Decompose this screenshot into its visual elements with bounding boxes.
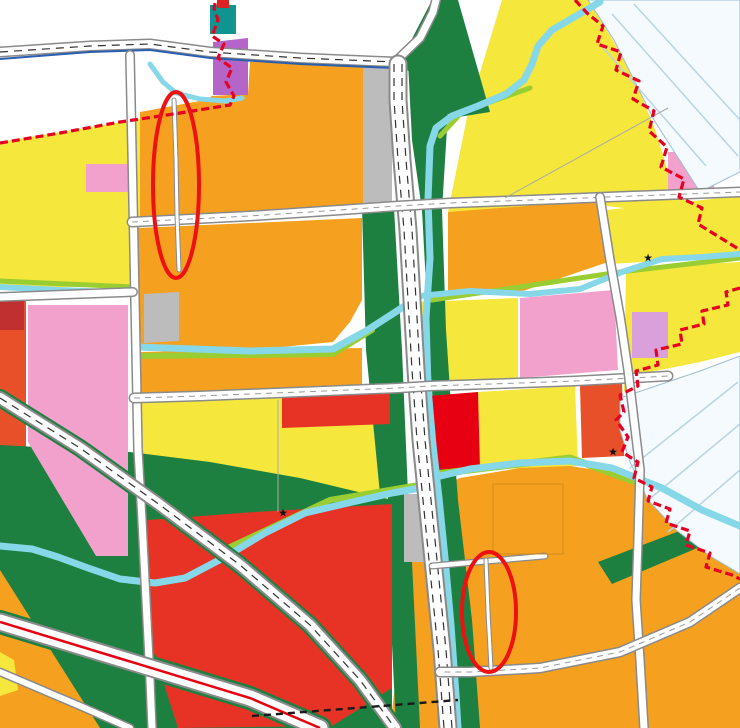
star-icon: ★ bbox=[278, 507, 288, 520]
map-canvas: ★★★ bbox=[0, 0, 740, 728]
star-icon: ★ bbox=[608, 446, 618, 459]
zoning-map[interactable]: ★★★ bbox=[0, 0, 740, 728]
star-icon: ★ bbox=[643, 252, 653, 265]
